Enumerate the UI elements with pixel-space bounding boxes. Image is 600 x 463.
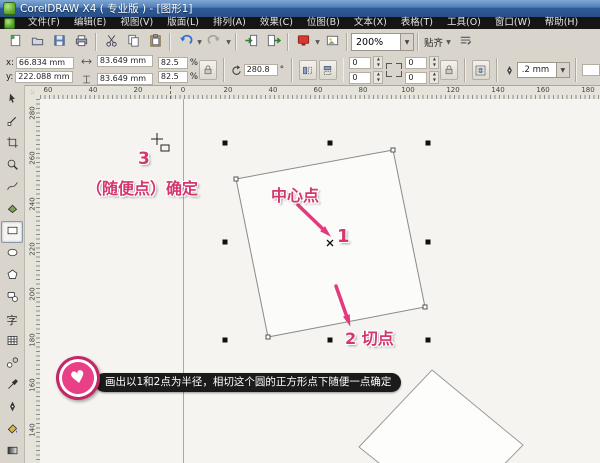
hruler-label-80: 80 [359, 86, 368, 94]
rectangle-tool-icon [6, 224, 19, 240]
menu-item-4[interactable]: 排列(A) [206, 17, 253, 29]
menu-item-1[interactable]: 编辑(E) [67, 17, 113, 29]
zoom-tool-icon [6, 158, 19, 174]
y-position-field[interactable]: 222.088 mm [15, 71, 73, 83]
degree-label: ° [280, 65, 284, 75]
welcome-screen-button[interactable] [321, 31, 343, 53]
tip-banner: 画出以1和2点为半径，相切这个圆的正方形点下随便一点确定 [95, 373, 401, 392]
menu-item-11[interactable]: 帮助(H) [538, 17, 586, 29]
corner-radius-tr-field[interactable]: 0 [405, 57, 427, 69]
mirror-horizontal-button[interactable] [299, 60, 317, 80]
export-button[interactable] [262, 31, 284, 53]
interactive-fill-tool-icon [6, 444, 19, 460]
undo-button[interactable] [174, 31, 196, 53]
eyedropper-tool[interactable] [1, 375, 23, 397]
outline-width-combo[interactable]: .2 mm ▼ [517, 62, 570, 78]
standard-toolbar: ▼▼▼200%▼贴齐▼ [0, 29, 600, 56]
basic-shapes-tool[interactable] [1, 287, 23, 309]
menu-item-3[interactable]: 版面(L) [160, 17, 206, 29]
lock-ratio-button[interactable] [199, 60, 217, 80]
object-width-icon [79, 53, 95, 69]
app-launcher-button[interactable] [292, 31, 314, 53]
import-icon [244, 33, 259, 52]
lock-corners-button[interactable] [440, 60, 458, 80]
heart-icon: ♥ [68, 367, 87, 390]
toolbar-separator [235, 33, 237, 51]
hruler-label-60: 60 [314, 86, 323, 94]
zoom-dropdown-icon[interactable]: ▼ [400, 34, 413, 50]
redo-icon [207, 33, 222, 52]
document-window-icon[interactable] [4, 18, 15, 29]
rectangle-cursor-glyph [161, 145, 169, 151]
toolbox: 字 [0, 85, 25, 463]
ellipse-tool-icon [6, 246, 19, 262]
square-node-3[interactable] [266, 335, 270, 339]
selection-handle-6[interactable] [328, 338, 333, 343]
menu-item-10[interactable]: 窗口(W) [488, 17, 538, 29]
step3-text-label: （随便点）确定 [86, 175, 198, 199]
outline-pen-tool[interactable] [1, 397, 23, 419]
copy-icon [126, 33, 141, 52]
shape-tool-icon [6, 114, 19, 130]
coreldraw-logo-icon [3, 2, 16, 15]
vruler-label-220: 220 [29, 241, 37, 256]
import-button[interactable] [240, 31, 262, 53]
coreldraw-window: CorelDRAW X4 ( 专业版 ) - [图形1] 文件(F)编辑(E)视… [0, 0, 600, 463]
rectangle-tool[interactable] [1, 221, 23, 243]
toolbar-separator [417, 33, 419, 51]
menu-item-7[interactable]: 文本(X) [347, 17, 394, 29]
vruler-label-280: 280 [29, 106, 37, 121]
save-button[interactable] [48, 31, 70, 53]
paste-button[interactable] [144, 31, 166, 53]
redo-button[interactable] [203, 31, 225, 53]
undo-icon [178, 33, 193, 52]
corner-bl-spinner[interactable]: ▲▼ [373, 71, 383, 84]
fill-tool-icon [6, 422, 19, 438]
zoom-tool[interactable] [1, 155, 23, 177]
rotation-angle-field[interactable]: 280.8 [244, 64, 278, 76]
print-icon [74, 33, 89, 52]
corner-tl-spinner[interactable]: ▲▼ [373, 56, 383, 69]
percent-label-1: % [190, 58, 198, 68]
zoom-level-combo[interactable]: 200%▼ [351, 33, 414, 51]
vertical-ruler[interactable]: 280260240220200180160140 [25, 99, 41, 463]
menu-item-8[interactable]: 表格(T) [394, 17, 440, 29]
hruler-label-100: 100 [401, 86, 414, 94]
save-icon [52, 33, 67, 52]
corner-tl-icon [386, 63, 392, 69]
object-height-field[interactable]: 83.649 mm [97, 73, 153, 85]
x-label: x: [6, 58, 14, 68]
vruler-label-260: 260 [29, 151, 37, 166]
corner-radius-bl-field[interactable]: 0 [349, 72, 371, 84]
percent-label-2: % [190, 72, 198, 82]
scale-h-field[interactable]: 82.5 [158, 57, 188, 69]
hruler-label-20: 20 [134, 86, 143, 94]
blend-tool-icon [6, 356, 19, 372]
menu-item-0[interactable]: 文件(F) [21, 17, 67, 29]
open-icon [30, 33, 45, 52]
window-title: CorelDRAW X4 ( 专业版 ) - [图形1] [20, 1, 192, 16]
drawing-canvas[interactable]: 3 （随便点）确定 中心点 1 2 切点 画出以1和2点为半径，相切这个圆的正方… [40, 99, 600, 463]
center-point-label: 中心点 [271, 182, 319, 206]
ellipse-tool[interactable] [1, 243, 23, 265]
eyedropper-tool-icon [6, 378, 19, 394]
shapes-layer [40, 99, 600, 463]
basic-shapes-tool-icon [6, 290, 19, 306]
welcome-screen-icon [325, 33, 340, 52]
vruler-label-180: 180 [29, 332, 37, 347]
hruler-label-180: 180 [581, 86, 594, 94]
work-area: 字 ⁙ 604020020406080100120140160180 28026… [0, 85, 600, 463]
hruler-label-40: 40 [269, 86, 278, 94]
pick-tool-icon [6, 92, 19, 108]
selection-handle-3[interactable] [223, 240, 228, 245]
selection-handle-0[interactable] [223, 141, 228, 146]
selection-handle-5[interactable] [223, 338, 228, 343]
horizontal-ruler[interactable]: 604020020406080100120140160180 [40, 86, 600, 100]
paste-icon [148, 33, 163, 52]
toolbar-separator [95, 33, 97, 51]
object-width-field[interactable]: 83.649 mm [97, 55, 153, 67]
table-tool-icon [6, 334, 19, 350]
snap-label: 贴齐 [424, 35, 443, 49]
menu-item-5[interactable]: 效果(C) [253, 17, 300, 29]
snap-to-button[interactable]: 贴齐▼ [424, 35, 452, 49]
crop-tool[interactable] [1, 133, 23, 155]
freehand-tool-icon [6, 180, 19, 196]
step3-number-label: 3 [138, 149, 150, 169]
y-label: y: [6, 72, 13, 82]
zoom-level-value: 200% [352, 37, 400, 48]
undo-dropdown-icon[interactable]: ▼ [196, 39, 203, 46]
vruler-label-200: 200 [29, 287, 37, 302]
snap-dropdown-icon[interactable]: ▼ [445, 39, 452, 46]
vruler-label-140: 140 [29, 423, 37, 438]
corner-tr-icon [396, 63, 402, 69]
corner-tr-spinner[interactable]: ▲▼ [429, 56, 439, 69]
redo-dropdown-icon[interactable]: ▼ [225, 39, 232, 46]
text-wrap-button[interactable] [472, 60, 490, 80]
cut-icon [104, 33, 119, 52]
hruler-label-20: 20 [224, 86, 233, 94]
hruler-label-40: 40 [89, 86, 98, 94]
toolbar-separator [169, 33, 171, 51]
mirror-vertical-button[interactable] [319, 60, 337, 80]
point1-label: 1 [337, 226, 350, 247]
options-button[interactable] [454, 31, 476, 53]
menu-item-2[interactable]: 视图(V) [113, 17, 160, 29]
square-node-1[interactable] [391, 148, 395, 152]
polygon-tool-icon [6, 268, 19, 284]
freehand-tool[interactable] [1, 177, 23, 199]
blend-tool[interactable] [1, 353, 23, 375]
crop-tool-icon [6, 136, 19, 152]
text-tool[interactable]: 字 [1, 309, 23, 331]
hruler-label-140: 140 [491, 86, 504, 94]
outline-pen-tool-icon [6, 400, 19, 416]
corner-radius-br-field[interactable]: 0 [405, 72, 427, 84]
vruler-label-240: 240 [29, 196, 37, 211]
outline-width-value: .2 mm [518, 65, 556, 75]
toolbar-separator [346, 33, 348, 51]
selection-handle-7[interactable] [426, 338, 431, 343]
app-launcher-dropdown-icon[interactable]: ▼ [314, 39, 321, 46]
table-tool[interactable] [1, 331, 23, 353]
hruler-label-60: 60 [44, 86, 53, 94]
crosshair-cursor [151, 133, 163, 145]
smart-fill-tool-icon [6, 202, 19, 218]
selection-handle-2[interactable] [426, 141, 431, 146]
export-icon [266, 33, 281, 52]
selection-handle-1[interactable] [328, 141, 333, 146]
cut-button[interactable] [100, 31, 122, 53]
selection-handle-4[interactable] [426, 240, 431, 245]
square-node-0[interactable] [234, 177, 238, 181]
rotation-icon [230, 62, 244, 78]
shape-tool[interactable] [1, 111, 23, 133]
corner-radius-tl-field[interactable]: 0 [349, 57, 371, 69]
corner-br-icon [396, 71, 402, 77]
print-button[interactable] [70, 31, 92, 53]
corner-br-spinner[interactable]: ▲▼ [429, 71, 439, 84]
interactive-fill-tool[interactable] [1, 441, 23, 463]
outline-width-icon [503, 62, 517, 78]
menu-bar: 文件(F)编辑(E)视图(V)版面(L)排列(A)效果(C)位图(B)文本(X)… [0, 17, 600, 29]
hruler-label-120: 120 [446, 86, 459, 94]
text-tool-icon: 字 [7, 312, 18, 328]
toolbar-separator [287, 33, 289, 51]
menu-item-9[interactable]: 工具(O) [440, 17, 488, 29]
fill-tool[interactable] [1, 419, 23, 441]
new-button[interactable] [4, 31, 26, 53]
title-bar: CorelDRAW X4 ( 专业版 ) - [图形1] [0, 0, 600, 17]
polygon-tool[interactable] [1, 265, 23, 287]
options-icon [458, 33, 473, 52]
open-button[interactable] [26, 31, 48, 53]
pick-tool[interactable] [1, 89, 23, 111]
hruler-label-160: 160 [536, 86, 549, 94]
ruler-origin[interactable]: ⁙ [25, 86, 41, 100]
x-position-field[interactable]: 66.834 mm [16, 57, 74, 69]
copy-button[interactable] [122, 31, 144, 53]
property-bar: x: 66.834 mm y: 222.088 mm 83.649 mm 83.… [0, 55, 600, 86]
point2-label: 2 切点 [345, 325, 394, 349]
vruler-label-160: 160 [29, 377, 37, 392]
smart-fill-tool[interactable] [1, 199, 23, 221]
scale-v-field[interactable]: 82.5 [158, 71, 188, 83]
app-launcher-icon [296, 33, 311, 52]
square-node-2[interactable] [423, 305, 427, 309]
hruler-label-0: 0 [181, 86, 185, 94]
new-icon [8, 33, 23, 52]
corner-bl-icon [386, 71, 392, 77]
outline-width-dropdown-icon[interactable]: ▼ [556, 63, 569, 77]
menu-item-6[interactable]: 位图(B) [300, 17, 347, 29]
clipped-right-field[interactable] [582, 64, 600, 76]
